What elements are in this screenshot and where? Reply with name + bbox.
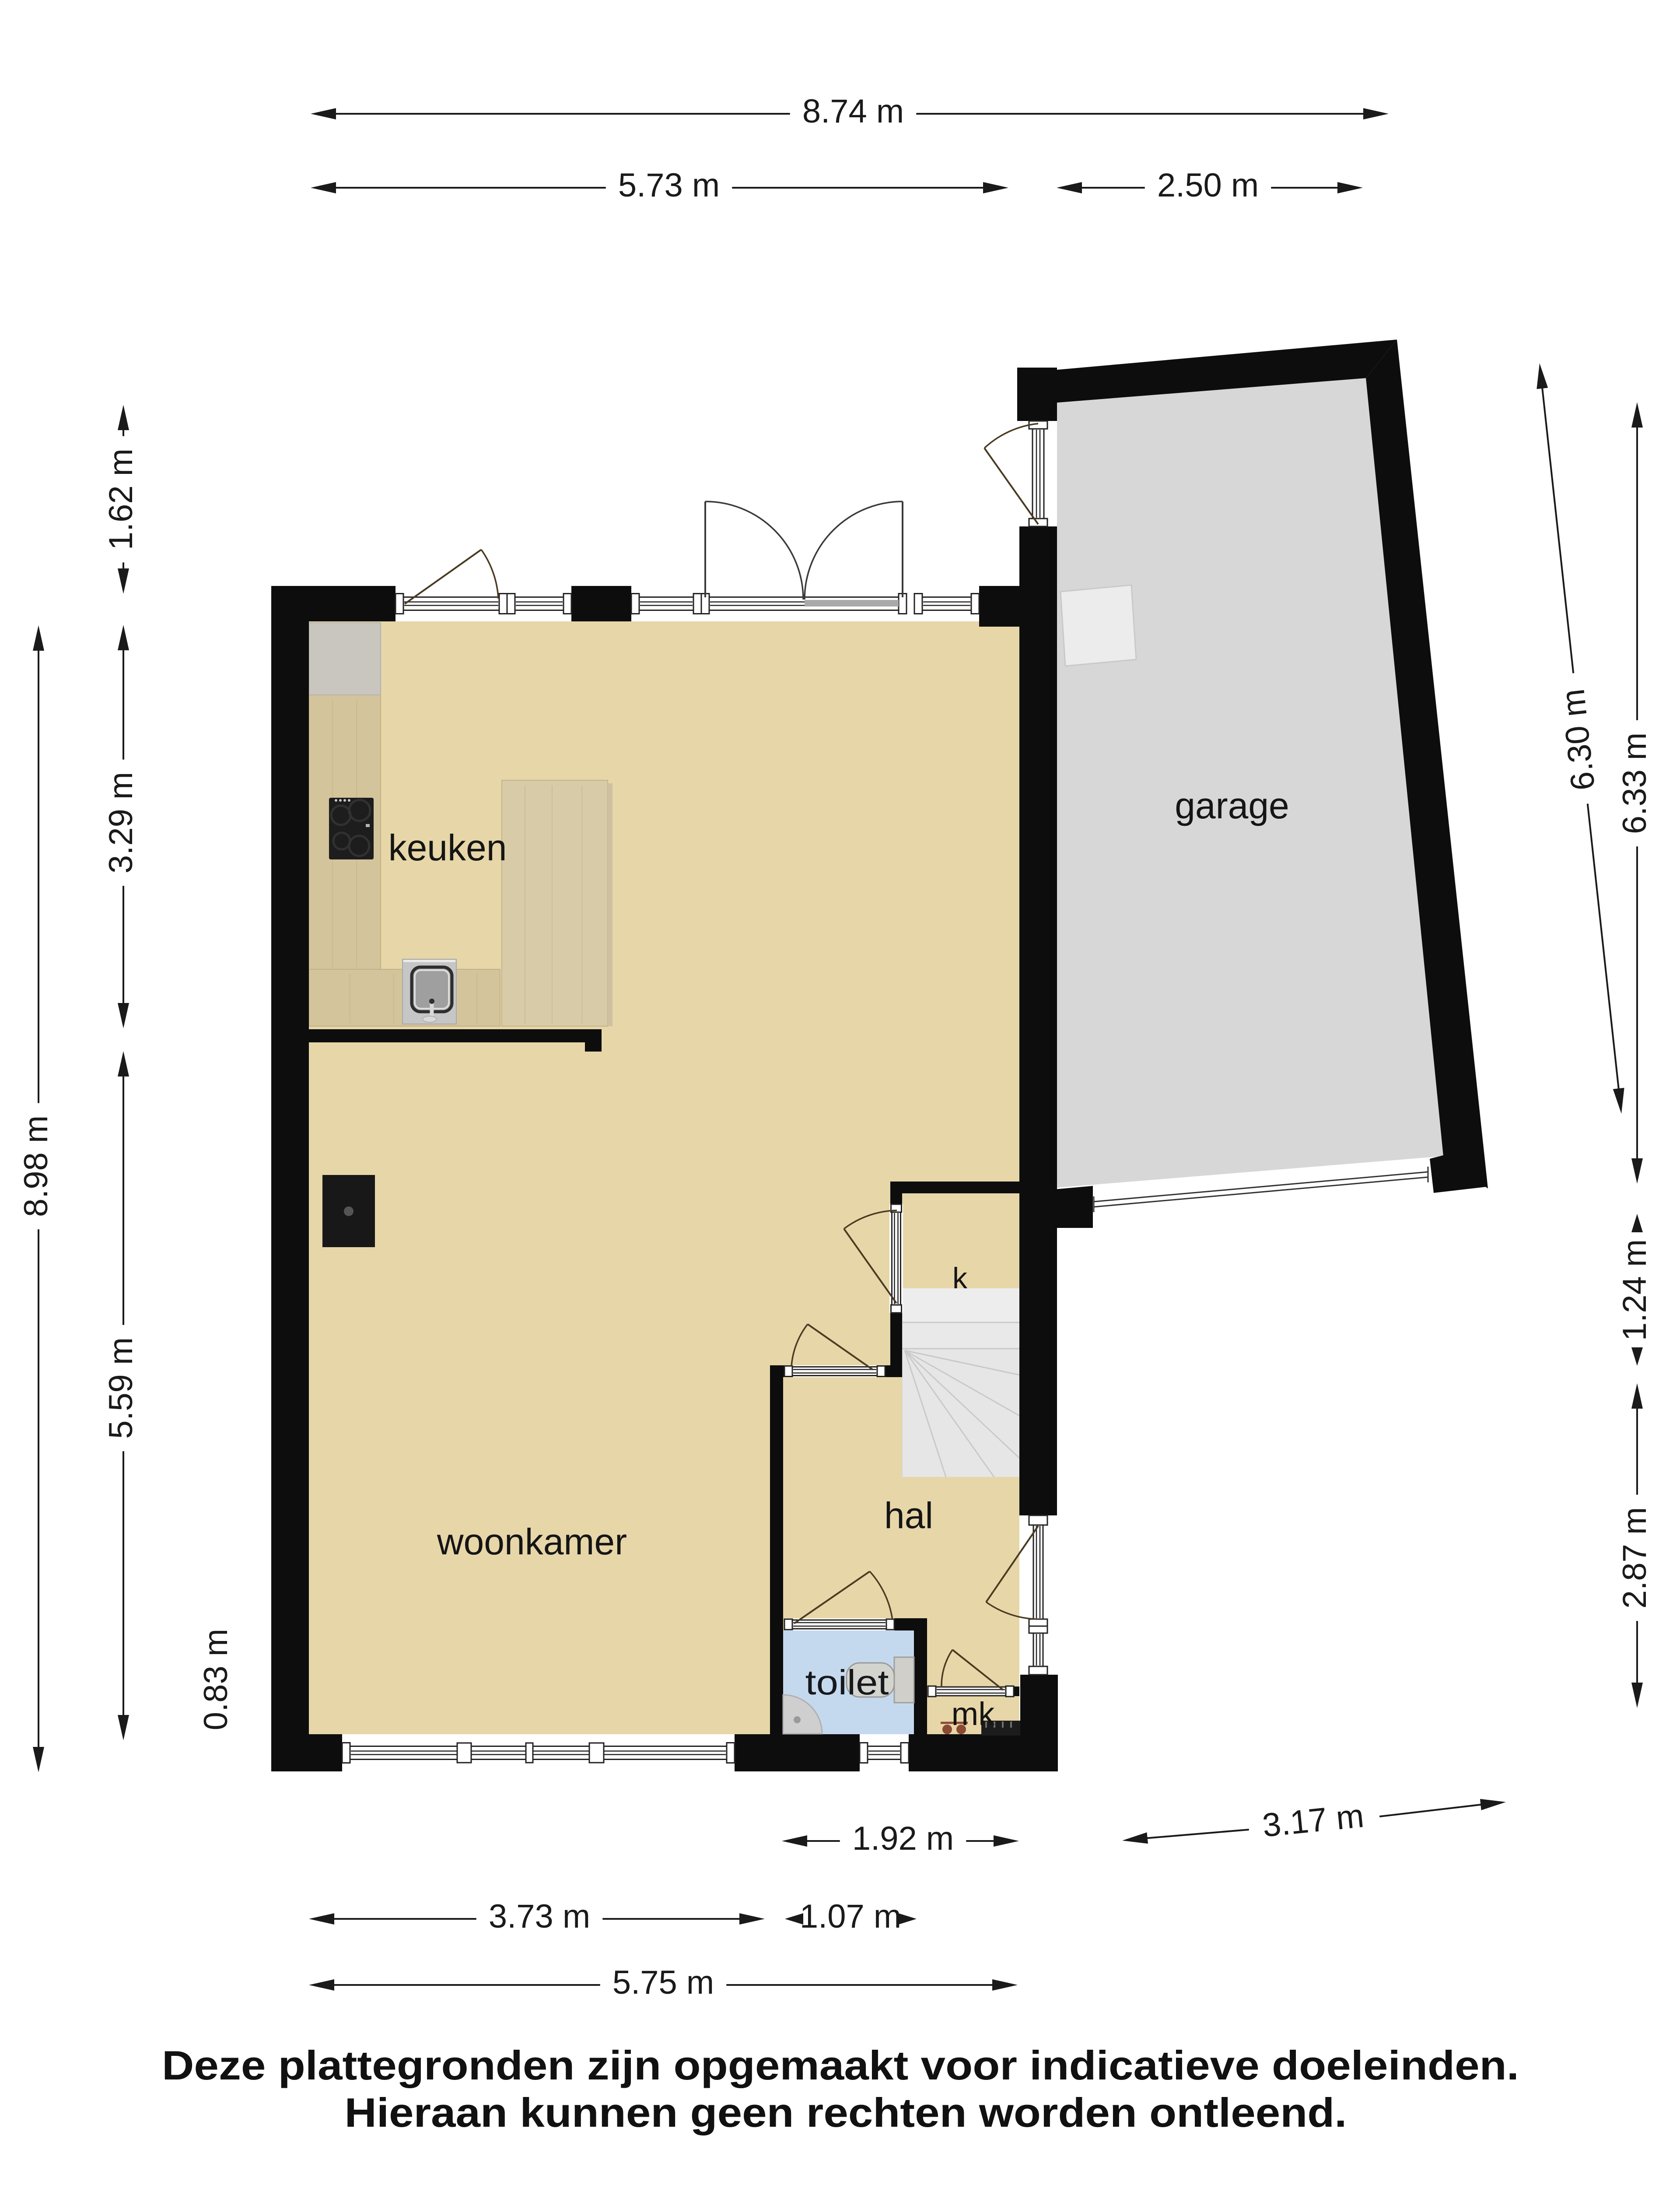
svg-text:2.50 m: 2.50 m <box>1157 167 1259 204</box>
svg-text:garage: garage <box>1175 785 1289 826</box>
svg-text:3.29 m: 3.29 m <box>102 772 140 873</box>
svg-text:Hieraan kunnen geen rechten wo: Hieraan kunnen geen rechten worden ontle… <box>345 2090 1347 2135</box>
svg-text:1.62 m: 1.62 m <box>102 449 140 550</box>
svg-text:1.07 m: 1.07 m <box>800 1898 901 1935</box>
svg-text:3.73 m: 3.73 m <box>489 1898 590 1935</box>
svg-text:8.98 m: 8.98 m <box>17 1115 55 1217</box>
svg-text:8.74 m: 8.74 m <box>802 93 904 130</box>
svg-text:1.92 m: 1.92 m <box>852 1820 954 1857</box>
svg-text:5.59 m: 5.59 m <box>102 1337 140 1439</box>
svg-text:2.87 m: 2.87 m <box>1616 1507 1653 1609</box>
svg-text:k: k <box>952 1262 968 1295</box>
svg-text:keuken: keuken <box>388 827 507 868</box>
svg-text:0.83 m: 0.83 m <box>197 1629 234 1730</box>
svg-text:1.24 m: 1.24 m <box>1616 1239 1653 1341</box>
svg-text:mk: mk <box>952 1696 995 1732</box>
svg-text:5.75 m: 5.75 m <box>612 1964 714 2001</box>
svg-text:hal: hal <box>884 1495 933 1536</box>
svg-text:woonkamer: woonkamer <box>437 1521 627 1562</box>
svg-text:toilet: toilet <box>805 1663 889 1702</box>
svg-text:5.73 m: 5.73 m <box>618 167 720 204</box>
svg-text:6.33 m: 6.33 m <box>1616 733 1653 834</box>
svg-text:Deze plattegronden zijn opgema: Deze plattegronden zijn opgemaakt voor i… <box>162 2042 1519 2088</box>
